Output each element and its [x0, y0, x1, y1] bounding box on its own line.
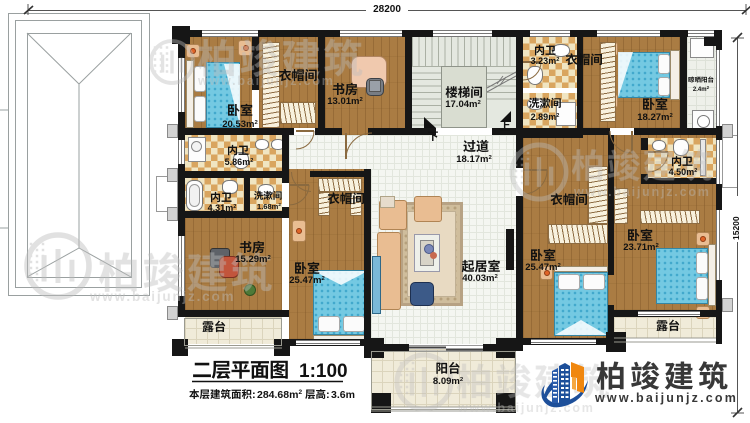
svg-text:23.71m2: 23.71m2: [623, 242, 659, 253]
svg-text:www.baijunjz.com: www.baijunjz.com: [197, 74, 335, 88]
svg-text:18.27m2: 18.27m2: [637, 112, 673, 123]
svg-text:www.baijunjz.com: www.baijunjz.com: [457, 401, 595, 415]
svg-text:18.17m2: 18.17m2: [456, 154, 492, 165]
svg-text:13.01m2: 13.01m2: [327, 96, 363, 107]
svg-text::: :: [326, 389, 330, 401]
svg-text:4.50m2: 4.50m2: [669, 167, 698, 177]
svg-text:4.31m2: 4.31m2: [208, 203, 237, 213]
svg-text:28200: 28200: [373, 4, 401, 15]
svg-text::: :: [252, 389, 256, 401]
svg-text:1.68m2: 1.68m2: [257, 202, 281, 211]
svg-text:15200: 15200: [731, 216, 741, 240]
svg-text:3.23m2: 3.23m2: [531, 56, 560, 66]
svg-text:8.09m2: 8.09m2: [433, 376, 464, 387]
svg-text:www.baijunjz.com: www.baijunjz.com: [594, 391, 738, 405]
svg-text:5.86m2: 5.86m2: [225, 157, 254, 167]
svg-text:40.03m2: 40.03m2: [462, 273, 498, 284]
svg-text:3.6m: 3.6m: [331, 389, 355, 401]
svg-text:1:100: 1:100: [299, 361, 348, 382]
svg-text:284.68m2: 284.68m2: [257, 389, 302, 401]
svg-text:15.29m2: 15.29m2: [235, 254, 271, 265]
svg-text:25.47m2: 25.47m2: [289, 275, 325, 286]
svg-text:www.baijunjz.com: www.baijunjz.com: [89, 289, 235, 304]
svg-text:20.53m2: 20.53m2: [222, 119, 258, 130]
svg-text:2.89m2: 2.89m2: [531, 112, 560, 122]
svg-text:25.47m2: 25.47m2: [525, 262, 561, 273]
svg-text:17.04m2: 17.04m2: [445, 99, 481, 110]
svg-text:www.baijunjz.com: www.baijunjz.com: [573, 185, 711, 199]
svg-text:2.4m2: 2.4m2: [693, 85, 710, 93]
